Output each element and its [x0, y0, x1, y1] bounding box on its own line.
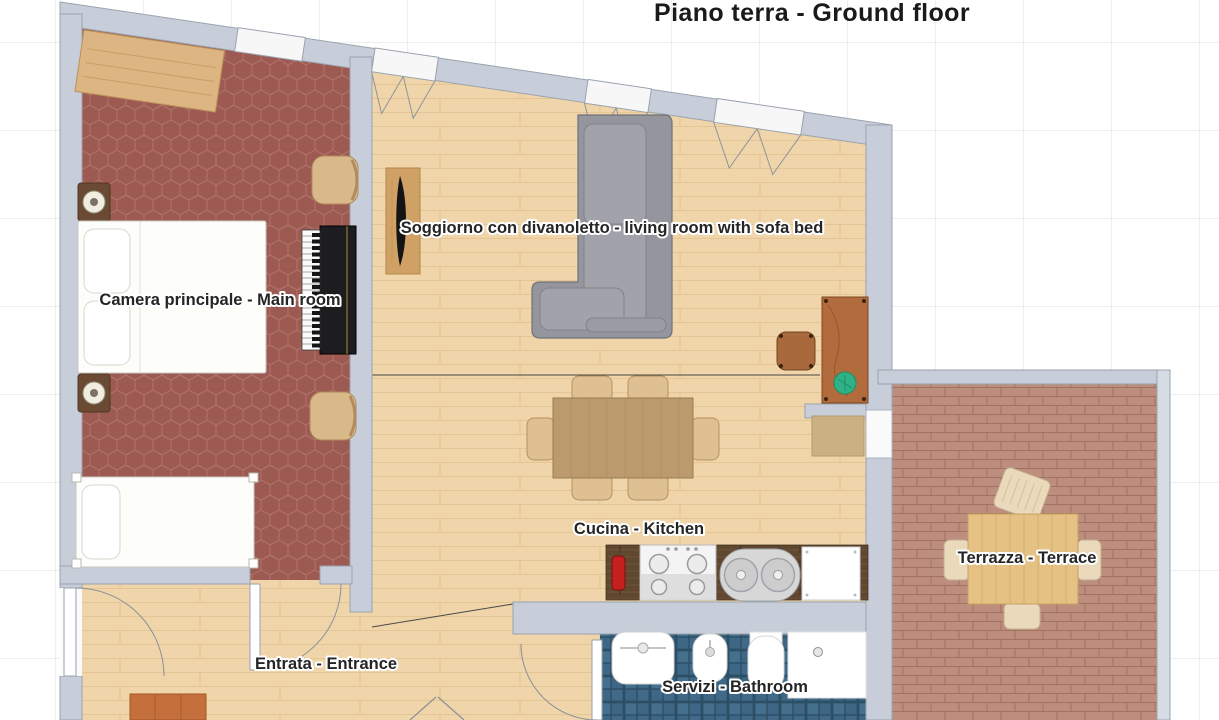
kitchen-counter	[606, 545, 868, 601]
terrace-east-wall	[1157, 370, 1170, 720]
piano	[302, 226, 356, 354]
label-living-room: Soggiorno con divanoletto - living room …	[401, 219, 824, 237]
dining-chair	[527, 418, 555, 460]
bathroom-door-leaf	[592, 640, 602, 720]
floor-plan-svg: Piano terra - Ground floor Camera princi…	[0, 0, 1219, 720]
drain-icon	[814, 648, 823, 657]
label-kitchen: Cucina - Kitchen	[574, 520, 704, 538]
entrance-furniture	[130, 694, 206, 720]
sofa-bolster	[586, 318, 666, 332]
faucet-icon	[638, 643, 648, 653]
dining-chair	[691, 418, 719, 460]
label-terrace: Terrazza - Terrace	[958, 549, 1097, 567]
dining-table	[553, 398, 693, 478]
nightstand-lamp-bottom	[78, 374, 110, 412]
right-wall-upper	[866, 125, 892, 410]
burner	[688, 555, 707, 574]
floor-plan-canvas: Piano terra - Ground floor Camera princi…	[0, 0, 1219, 720]
stove	[640, 545, 716, 600]
door-mat	[812, 416, 864, 456]
bedroom-chair-top	[312, 156, 358, 204]
double-sink	[720, 549, 800, 601]
single-bed	[72, 473, 258, 568]
burner	[690, 580, 705, 595]
bedroom-south-wall-a	[60, 566, 250, 584]
fire-extinguisher-icon	[612, 556, 625, 590]
bidet	[693, 634, 727, 682]
right-wall-lower	[866, 458, 892, 720]
faucet-icon	[706, 648, 715, 657]
burner	[652, 580, 667, 595]
label-bathroom: Servizi - Bathroom	[662, 678, 808, 696]
left-wall-lower	[60, 676, 82, 720]
front-door-leaf	[64, 588, 76, 676]
pillow	[84, 229, 130, 293]
bedroom-south-wall-b	[320, 566, 352, 584]
piano-body	[320, 226, 356, 354]
terrace-chair-bottom	[1004, 603, 1040, 629]
terrace-north-wall	[878, 370, 1170, 384]
terrace-door	[866, 410, 892, 458]
desk-chair	[777, 332, 815, 370]
shoe-cabinet	[130, 694, 206, 720]
label-entrance: Entrata - Entrance	[255, 655, 397, 673]
label-bedroom: Camera principale - Main room	[99, 291, 340, 309]
pillow	[84, 301, 130, 365]
pillow	[82, 485, 120, 559]
dishwasher	[802, 547, 860, 600]
page-title: Piano terra - Ground floor	[654, 0, 970, 27]
kitchen-bathroom-wall	[513, 602, 868, 634]
washbasin	[612, 632, 674, 684]
desk	[822, 297, 868, 403]
burner	[650, 555, 669, 574]
bedroom-chair-bottom	[310, 392, 356, 440]
nightstand-lamp-top	[78, 183, 110, 221]
sofa-cushion	[584, 124, 646, 224]
